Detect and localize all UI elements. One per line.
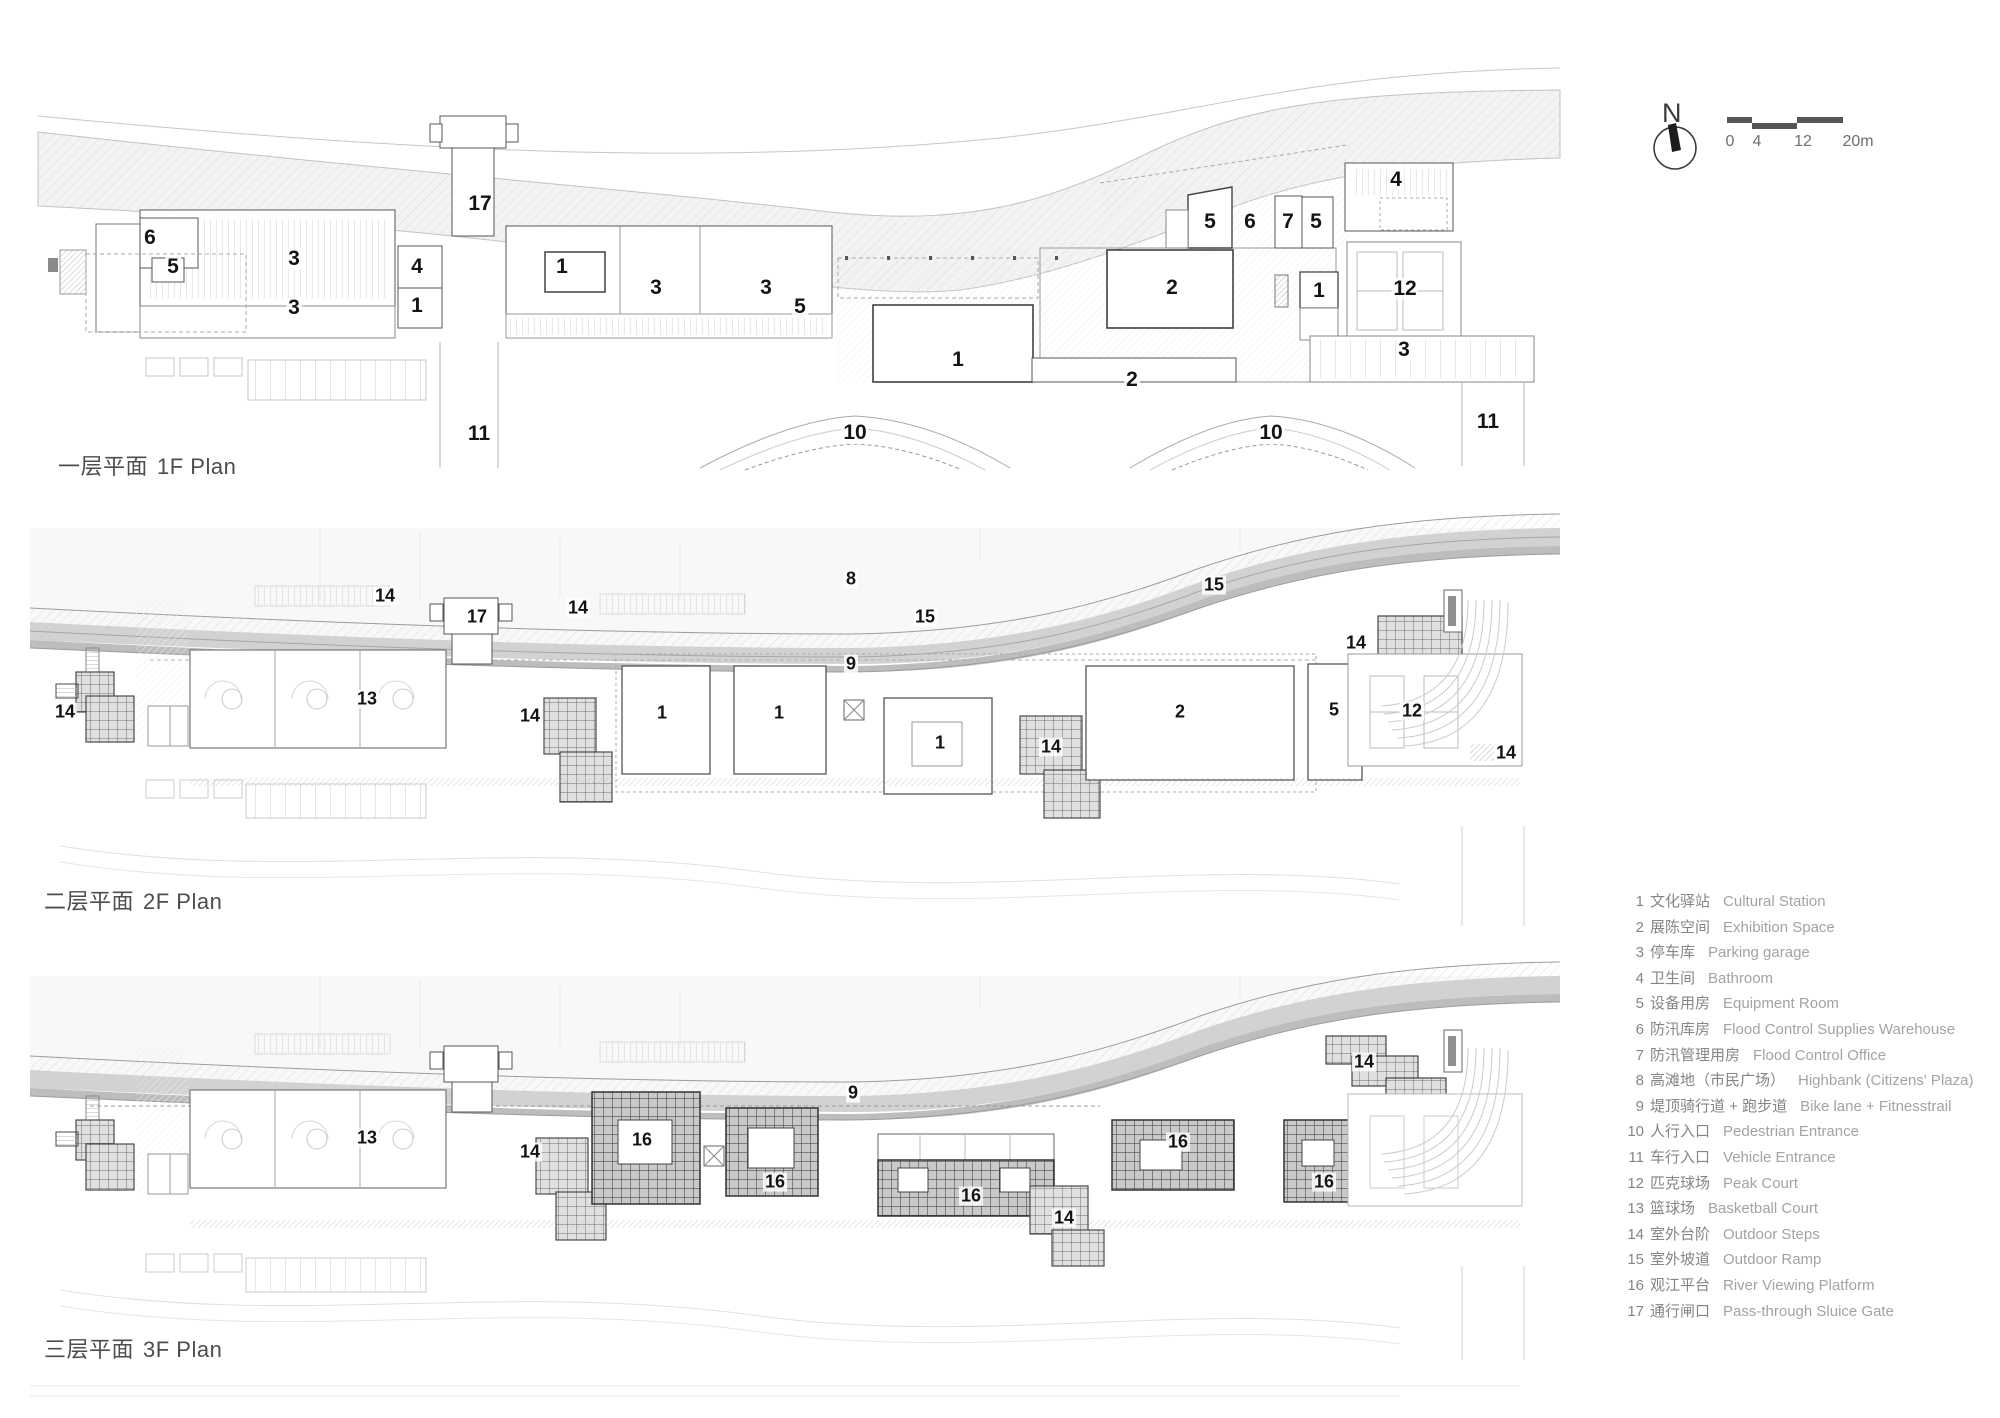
plan-1f-art <box>38 68 1560 470</box>
plan-label-1f-3: 3 <box>648 277 664 299</box>
scale-bar <box>1727 117 1843 129</box>
legend-item-en: Bathroom <box>1708 966 1773 992</box>
legend-item-zh: 高滩地（市民广场） <box>1650 1068 1785 1094</box>
plan-label-1f-6: 6 <box>1242 211 1258 233</box>
legend-item-number: 7 <box>1626 1043 1644 1069</box>
plan-label-1f-11: 11 <box>1475 411 1501 433</box>
legend-item-zh: 匹克球场 <box>1650 1171 1710 1197</box>
legend-row-5: 5设备用房Equipment Room <box>1626 991 1976 1017</box>
plan-title-2f-zh: 二层平面 <box>44 889 134 914</box>
plan-label-1f-4: 4 <box>1388 169 1404 191</box>
legend-item-number: 8 <box>1626 1068 1644 1094</box>
plan-label-2f-1: 1 <box>933 734 947 753</box>
legend-item-en: Vehicle Entrance <box>1723 1145 1836 1171</box>
scale-tick-4: 4 <box>1753 133 1762 151</box>
plan-label-1f-5: 5 <box>1202 211 1218 233</box>
legend-item-number: 5 <box>1626 991 1644 1017</box>
legend-row-12: 12匹克球场Peak Court <box>1626 1171 1976 1197</box>
plan-title-2f-en: 2F Plan <box>143 889 222 914</box>
plan-label-1f-1: 1 <box>554 256 570 278</box>
legend-item-number: 2 <box>1626 915 1644 941</box>
legend-item-en: Outdoor Steps <box>1723 1222 1820 1248</box>
plan-label-2f-5: 5 <box>1327 701 1341 720</box>
plan-title-2f: 二层平面2F Plan <box>44 884 222 916</box>
legend-item-en: River Viewing Platform <box>1723 1273 1874 1299</box>
legend-row-16: 16观江平台River Viewing Platform <box>1626 1273 1976 1299</box>
plan-label-2f-14: 14 <box>518 707 542 726</box>
legend-item-number: 16 <box>1626 1273 1644 1299</box>
plan-label-2f-15: 15 <box>913 608 937 627</box>
legend-item-en: Equipment Room <box>1723 991 1839 1017</box>
plan-label-2f-14: 14 <box>373 587 397 606</box>
legend-item-number: 14 <box>1626 1222 1644 1248</box>
plan-label-1f-6: 6 <box>142 227 158 249</box>
plan-label-1f-11: 11 <box>466 423 492 445</box>
legend-item-number: 9 <box>1626 1094 1644 1120</box>
legend-item-number: 6 <box>1626 1017 1644 1043</box>
legend-item-zh: 防汛管理用房 <box>1650 1043 1740 1069</box>
plan-label-3f-16: 16 <box>630 1131 654 1150</box>
plan-label-1f-4: 4 <box>409 256 425 278</box>
legend-item-en: Outdoor Ramp <box>1723 1247 1821 1273</box>
plan-label-2f-2: 2 <box>1173 703 1187 722</box>
legend-item-en: Cultural Station <box>1723 889 1826 915</box>
legend-row-4: 4卫生间Bathroom <box>1626 966 1976 992</box>
plan-label-1f-3: 3 <box>1396 339 1412 361</box>
legend-row-1: 1文化驿站Cultural Station <box>1626 889 1976 915</box>
legend-item-zh: 展陈空间 <box>1650 915 1710 941</box>
plan-title-3f-en: 3F Plan <box>143 1337 222 1362</box>
legend-item-number: 10 <box>1626 1119 1644 1145</box>
legend-item-zh: 卫生间 <box>1650 966 1695 992</box>
legend-item-en: Exhibition Space <box>1723 915 1835 941</box>
legend-row-15: 15室外坡道Outdoor Ramp <box>1626 1247 1976 1273</box>
legend-item-zh: 车行入口 <box>1650 1145 1710 1171</box>
plan-title-3f-zh: 三层平面 <box>44 1337 134 1362</box>
plan-label-3f-16: 16 <box>763 1173 787 1192</box>
legend-row-6: 6防汛库房Flood Control Supplies Warehouse <box>1626 1017 1976 1043</box>
plan-label-2f-12: 12 <box>1400 702 1424 721</box>
plan-label-2f-14: 14 <box>53 703 77 722</box>
plan-label-3f-16: 16 <box>1312 1173 1336 1192</box>
legend-item-en: Pass-through Sluice Gate <box>1723 1299 1894 1325</box>
legend-item-zh: 人行入口 <box>1650 1119 1710 1145</box>
drawing-sheet: N 0 4 12 20m 176533411335122567514123111… <box>0 0 2000 1418</box>
plan-label-3f-16: 16 <box>959 1187 983 1206</box>
legend-item-zh: 停车库 <box>1650 940 1695 966</box>
legend-row-7: 7防汛管理用房Flood Control Office <box>1626 1043 1976 1069</box>
plan-label-2f-14: 14 <box>1344 634 1368 653</box>
legend-item-en: Basketball Court <box>1708 1196 1818 1222</box>
legend-item-en: Flood Control Office <box>1753 1043 1886 1069</box>
legend-row-13: 13篮球场Basketball Court <box>1626 1196 1976 1222</box>
plan-label-2f-9: 9 <box>844 655 858 674</box>
plan-label-1f-3: 3 <box>286 297 302 319</box>
north-label: N <box>1662 98 1682 129</box>
legend-row-10: 10人行入口Pedestrian Entrance <box>1626 1119 1976 1145</box>
plan-label-3f-16: 16 <box>1166 1133 1190 1152</box>
plan-label-1f-1: 1 <box>409 295 425 317</box>
plan-label-3f-14: 14 <box>518 1143 542 1162</box>
scale-tick-20m: 20m <box>1842 133 1873 151</box>
legend-row-2: 2展陈空间Exhibition Space <box>1626 915 1976 941</box>
legend-item-en: Parking garage <box>1708 940 1810 966</box>
legend-item-zh: 堤顶骑行道 + 跑步道 <box>1650 1094 1787 1120</box>
legend-item-zh: 防汛库房 <box>1650 1017 1710 1043</box>
legend-row-11: 11车行入口Vehicle Entrance <box>1626 1145 1976 1171</box>
plan-label-1f-5: 5 <box>165 256 181 278</box>
plan-label-1f-3: 3 <box>758 277 774 299</box>
legend-item-number: 13 <box>1626 1196 1644 1222</box>
scale-tick-0: 0 <box>1726 133 1735 151</box>
legend-item-en: Flood Control Supplies Warehouse <box>1723 1017 1955 1043</box>
plan-label-1f-1: 1 <box>950 349 966 371</box>
legend-row-8: 8高滩地（市民广场）Highbank (Citizens' Plaza) <box>1626 1068 1976 1094</box>
plan-label-3f-9: 9 <box>846 1084 860 1103</box>
legend-item-number: 3 <box>1626 940 1644 966</box>
plan-title-1f-en: 1F Plan <box>157 454 236 479</box>
plan-label-2f-14: 14 <box>566 599 590 618</box>
legend-item-number: 4 <box>1626 966 1644 992</box>
plan-label-2f-14: 14 <box>1039 738 1063 757</box>
plan-title-1f: 一层平面1F Plan <box>58 449 236 481</box>
plan-label-1f-10: 10 <box>1257 422 1284 444</box>
plan-label-2f-1: 1 <box>772 704 786 723</box>
plan-label-1f-3: 3 <box>286 248 302 270</box>
legend-item-zh: 篮球场 <box>1650 1196 1695 1222</box>
legend-item-zh: 文化驿站 <box>1650 889 1710 915</box>
plan-label-1f-2: 2 <box>1124 369 1140 391</box>
scale-tick-12: 12 <box>1794 133 1812 151</box>
plan-label-1f-5: 5 <box>1308 211 1324 233</box>
plan-label-1f-7: 7 <box>1280 211 1296 233</box>
plan-label-3f-14: 14 <box>1052 1209 1076 1228</box>
legend-item-zh: 室外台阶 <box>1650 1222 1710 1248</box>
legend-item-number: 12 <box>1626 1171 1644 1197</box>
plan-label-2f-1: 1 <box>655 704 669 723</box>
plan-label-1f-2: 2 <box>1164 277 1180 299</box>
plan-label-2f-17: 17 <box>465 608 489 627</box>
legend-item-zh: 观江平台 <box>1650 1273 1710 1299</box>
plan-label-1f-10: 10 <box>841 422 868 444</box>
legend-item-en: Bike lane + Fitnesstrail <box>1800 1094 1951 1120</box>
plan-label-1f-12: 12 <box>1391 278 1418 300</box>
plan-label-1f-1: 1 <box>1311 280 1327 302</box>
legend-item-number: 15 <box>1626 1247 1644 1273</box>
plan-title-1f-zh: 一层平面 <box>58 454 148 479</box>
plan-2f-art <box>30 514 1560 926</box>
plan-title-3f: 三层平面3F Plan <box>44 1332 222 1364</box>
plan-label-3f-14: 14 <box>1352 1053 1376 1072</box>
legend-item-en: Pedestrian Entrance <box>1723 1119 1859 1145</box>
legend-item-number: 11 <box>1626 1145 1644 1171</box>
plan-label-2f-14: 14 <box>1494 744 1518 763</box>
plan-label-2f-15: 15 <box>1202 576 1226 595</box>
legend-item-en: Peak Court <box>1723 1171 1798 1197</box>
legend: 1文化驿站Cultural Station2展陈空间Exhibition Spa… <box>1626 889 1976 1324</box>
legend-item-zh: 室外坡道 <box>1650 1247 1710 1273</box>
legend-item-number: 1 <box>1626 889 1644 915</box>
legend-row-14: 14室外台阶Outdoor Steps <box>1626 1222 1976 1248</box>
plan-label-2f-8: 8 <box>844 570 858 589</box>
legend-item-en: Highbank (Citizens' Plaza) <box>1798 1068 1973 1094</box>
legend-row-9: 9堤顶骑行道 + 跑步道Bike lane + Fitnesstrail <box>1626 1094 1976 1120</box>
legend-item-zh: 设备用房 <box>1650 991 1710 1017</box>
plan-label-1f-5: 5 <box>792 296 808 318</box>
legend-row-3: 3停车库Parking garage <box>1626 940 1976 966</box>
legend-item-zh: 通行闸口 <box>1650 1299 1710 1325</box>
plan-label-2f-13: 13 <box>355 690 379 709</box>
plan-label-3f-13: 13 <box>355 1129 379 1148</box>
legend-item-number: 17 <box>1626 1299 1644 1325</box>
north-arrow-icon <box>1654 123 1696 169</box>
legend-row-17: 17通行闸口Pass-through Sluice Gate <box>1626 1299 1976 1325</box>
plan-label-1f-17: 17 <box>466 193 493 215</box>
